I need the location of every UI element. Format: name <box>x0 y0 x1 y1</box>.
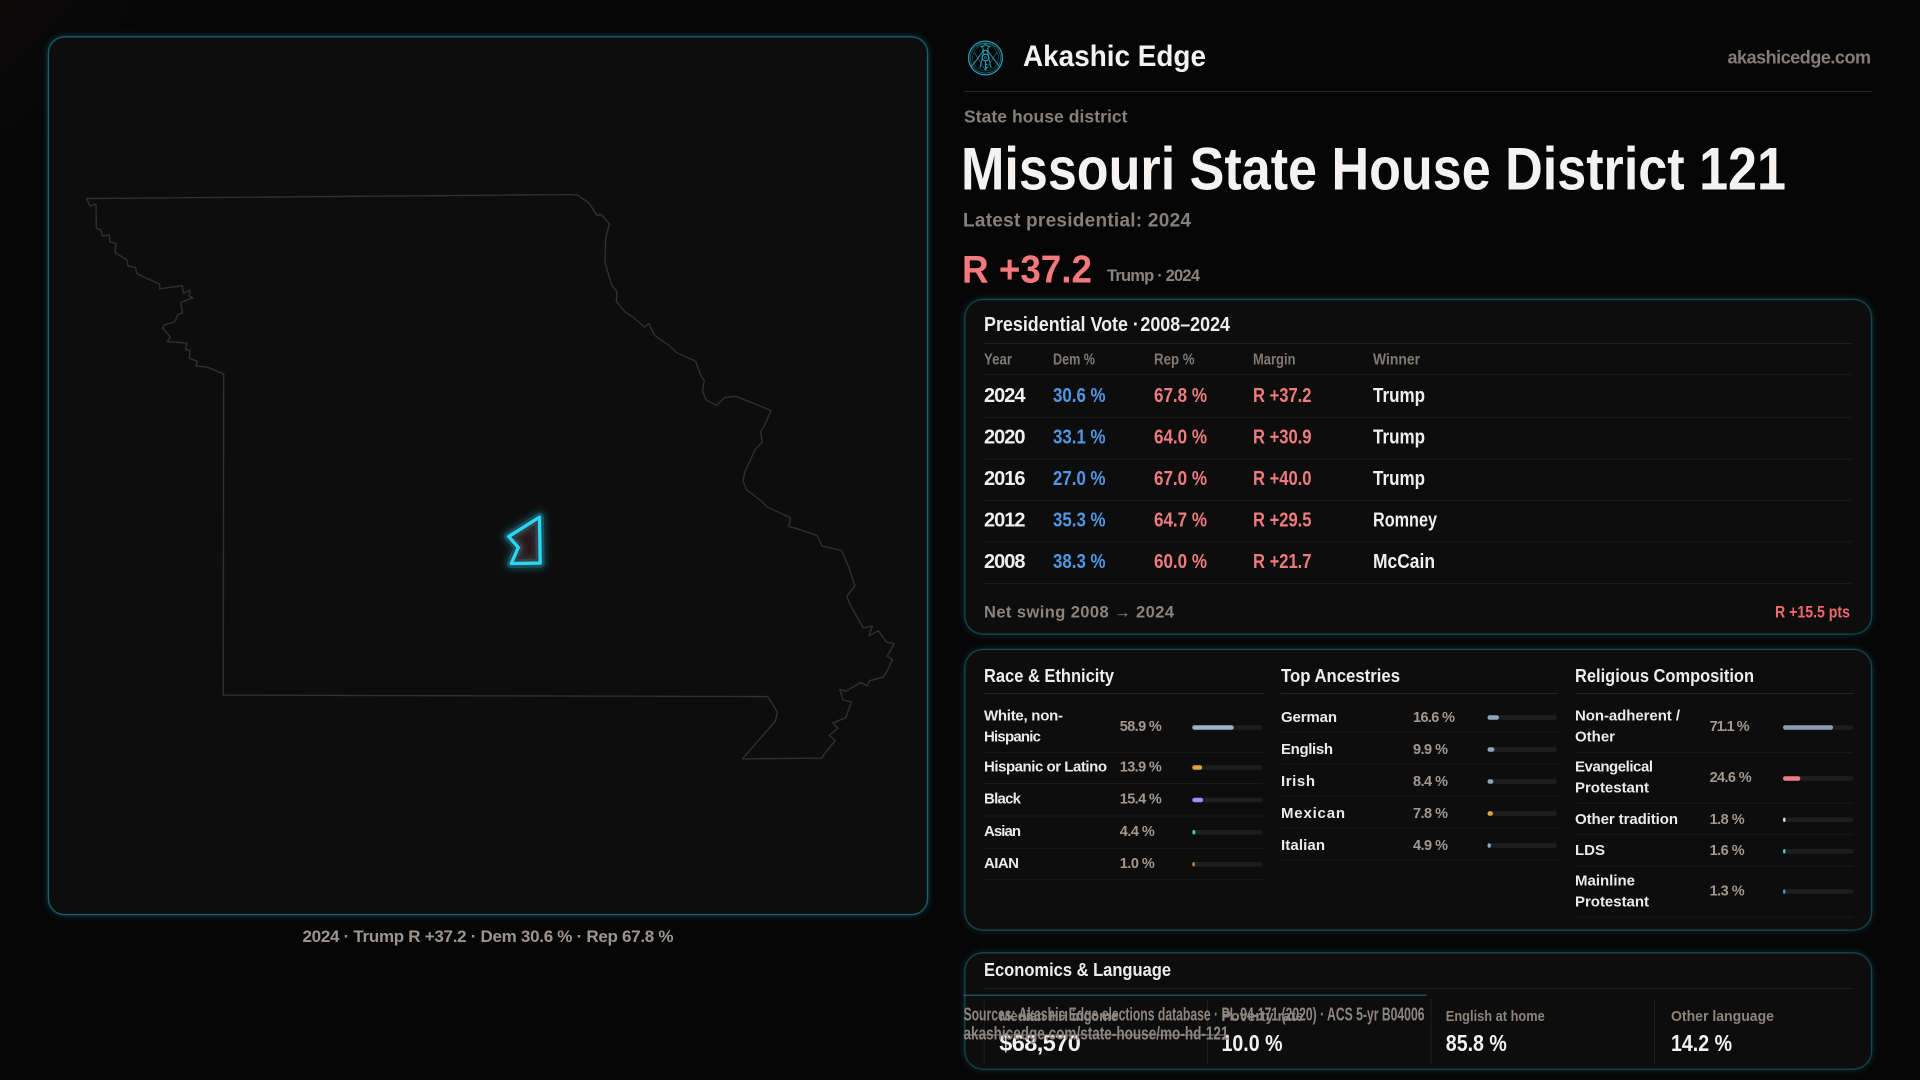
svg-text:60.0 %: 60.0 % <box>1154 551 1207 573</box>
svg-text:8.4 %: 8.4 % <box>1413 774 1448 790</box>
svg-text:R +40.0: R +40.0 <box>1253 468 1312 490</box>
svg-text:85.8 %: 85.8 % <box>1446 1030 1507 1056</box>
svg-text:1.8 %: 1.8 % <box>1710 812 1745 828</box>
svg-text:Trump: Trump <box>1373 385 1425 407</box>
svg-text:38.3 %: 38.3 % <box>1053 551 1106 573</box>
svg-text:67.8 %: 67.8 % <box>1154 385 1207 407</box>
svg-text:16.6 %: 16.6 % <box>1413 710 1455 726</box>
svg-text:German: German <box>1281 709 1337 726</box>
svg-text:64.0 %: 64.0 % <box>1154 427 1207 449</box>
svg-text:Mainline: Mainline <box>1575 873 1635 890</box>
svg-text:4.4 %: 4.4 % <box>1120 824 1155 840</box>
svg-text:2024: 2024 <box>984 385 1026 407</box>
svg-text:58.9 %: 58.9 % <box>1120 719 1162 735</box>
svg-text:Race & Ethnicity: Race & Ethnicity <box>984 666 1114 686</box>
svg-text:1.6 %: 1.6 % <box>1710 843 1745 859</box>
svg-text:27.0 %: 27.0 % <box>1053 468 1106 490</box>
svg-text:Other tradition: Other tradition <box>1575 811 1678 828</box>
svg-text:LDS: LDS <box>1575 842 1605 859</box>
svg-text:71.1 %: 71.1 % <box>1710 719 1750 735</box>
svg-text:State house district: State house district <box>964 107 1128 127</box>
svg-text:30.6 %: 30.6 % <box>1053 385 1106 407</box>
svg-text:Trump: Trump <box>1373 468 1425 490</box>
svg-text:Religious Composition: Religious Composition <box>1575 666 1754 686</box>
svg-text:akashicedge.com/state-house/mo: akashicedge.com/state-house/mo-hd-121 <box>964 1024 1229 1044</box>
svg-text:R +15.5 pts: R +15.5 pts <box>1775 604 1850 622</box>
svg-text:2020: 2020 <box>984 427 1026 449</box>
svg-text:Trump: Trump <box>1373 427 1425 449</box>
svg-text:35.3 %: 35.3 % <box>1053 510 1106 532</box>
svg-text:1.3 %: 1.3 % <box>1710 884 1745 900</box>
svg-text:Hispanic or Latino: Hispanic or Latino <box>984 759 1107 776</box>
svg-text:Mexican: Mexican <box>1281 805 1345 822</box>
svg-text:English at home: English at home <box>1446 1008 1545 1025</box>
svg-text:R +29.5: R +29.5 <box>1253 510 1312 532</box>
svg-text:R +37.2: R +37.2 <box>1253 385 1312 407</box>
svg-text:4.9 %: 4.9 % <box>1413 838 1448 854</box>
svg-text:24.6 %: 24.6 % <box>1710 770 1752 786</box>
svg-text:Dem %: Dem % <box>1053 352 1095 369</box>
svg-text:Missouri State House District: Missouri State House District 121 <box>961 136 1786 203</box>
svg-text:English: English <box>1281 741 1333 758</box>
svg-text:AIAN: AIAN <box>984 855 1019 872</box>
svg-text:64.7 %: 64.7 % <box>1154 510 1207 532</box>
svg-text:Sources: Akashic Edge election: Sources: Akashic Edge elections database… <box>964 1005 1425 1025</box>
svg-text:R +21.7: R +21.7 <box>1253 551 1312 573</box>
svg-text:Net swing 2008 → 2024: Net swing 2008 → 2024 <box>984 604 1175 622</box>
svg-text:akashicedge.com: akashicedge.com <box>1728 48 1872 68</box>
svg-text:9.9 %: 9.9 % <box>1413 742 1448 758</box>
svg-text:White, non-: White, non- <box>984 708 1063 725</box>
svg-text:Protestant: Protestant <box>1575 780 1649 797</box>
svg-text:Year: Year <box>984 352 1012 369</box>
svg-text:2024 · Trump R +37.2 · Dem 30.: 2024 · Trump R +37.2 · Dem 30.6 % · Rep … <box>303 927 674 946</box>
svg-text:Winner: Winner <box>1373 352 1420 369</box>
svg-text:1.0 %: 1.0 % <box>1120 856 1155 872</box>
svg-text:Hispanic: Hispanic <box>984 729 1041 746</box>
svg-text:67.0 %: 67.0 % <box>1154 468 1207 490</box>
svg-text:14.2 %: 14.2 % <box>1671 1030 1732 1056</box>
svg-text:Asian: Asian <box>984 823 1021 840</box>
svg-text:Margin: Margin <box>1253 352 1296 369</box>
svg-text:Protestant: Protestant <box>1575 894 1649 911</box>
svg-text:2012: 2012 <box>984 510 1026 532</box>
svg-text:McCain: McCain <box>1373 551 1435 573</box>
svg-text:Rep %: Rep % <box>1154 352 1195 369</box>
svg-text:7.8 %: 7.8 % <box>1413 806 1448 822</box>
svg-text:Akashic Edge: Akashic Edge <box>1023 40 1206 73</box>
svg-text:R +30.9: R +30.9 <box>1253 427 1312 449</box>
svg-text:33.1 %: 33.1 % <box>1053 427 1106 449</box>
svg-text:Non-adherent /: Non-adherent / <box>1575 708 1681 725</box>
svg-text:Top Ancestries: Top Ancestries <box>1281 666 1400 686</box>
svg-text:R +37.2: R +37.2 <box>962 249 1092 292</box>
svg-text:10.0 %: 10.0 % <box>1222 1030 1283 1056</box>
svg-text:Other language: Other language <box>1671 1008 1774 1025</box>
svg-text:Trump · 2024: Trump · 2024 <box>1107 267 1201 285</box>
svg-text:Other: Other <box>1575 729 1615 746</box>
svg-text:Evangelical: Evangelical <box>1575 759 1653 776</box>
svg-text:15.4 %: 15.4 % <box>1120 792 1162 808</box>
svg-text:Romney: Romney <box>1373 510 1438 532</box>
svg-text:Presidential Vote · 2008–2024: Presidential Vote · 2008–2024 <box>984 314 1231 336</box>
svg-text:13.9 %: 13.9 % <box>1120 760 1162 776</box>
svg-text:Latest presidential: 2024: Latest presidential: 2024 <box>963 211 1191 232</box>
svg-text:Irish: Irish <box>1281 773 1315 790</box>
svg-text:2008: 2008 <box>984 551 1026 573</box>
svg-text:Economics & Language: Economics & Language <box>984 960 1171 980</box>
svg-text:Black: Black <box>984 791 1022 808</box>
svg-text:2016: 2016 <box>984 468 1026 490</box>
svg-text:Italian: Italian <box>1281 837 1325 854</box>
